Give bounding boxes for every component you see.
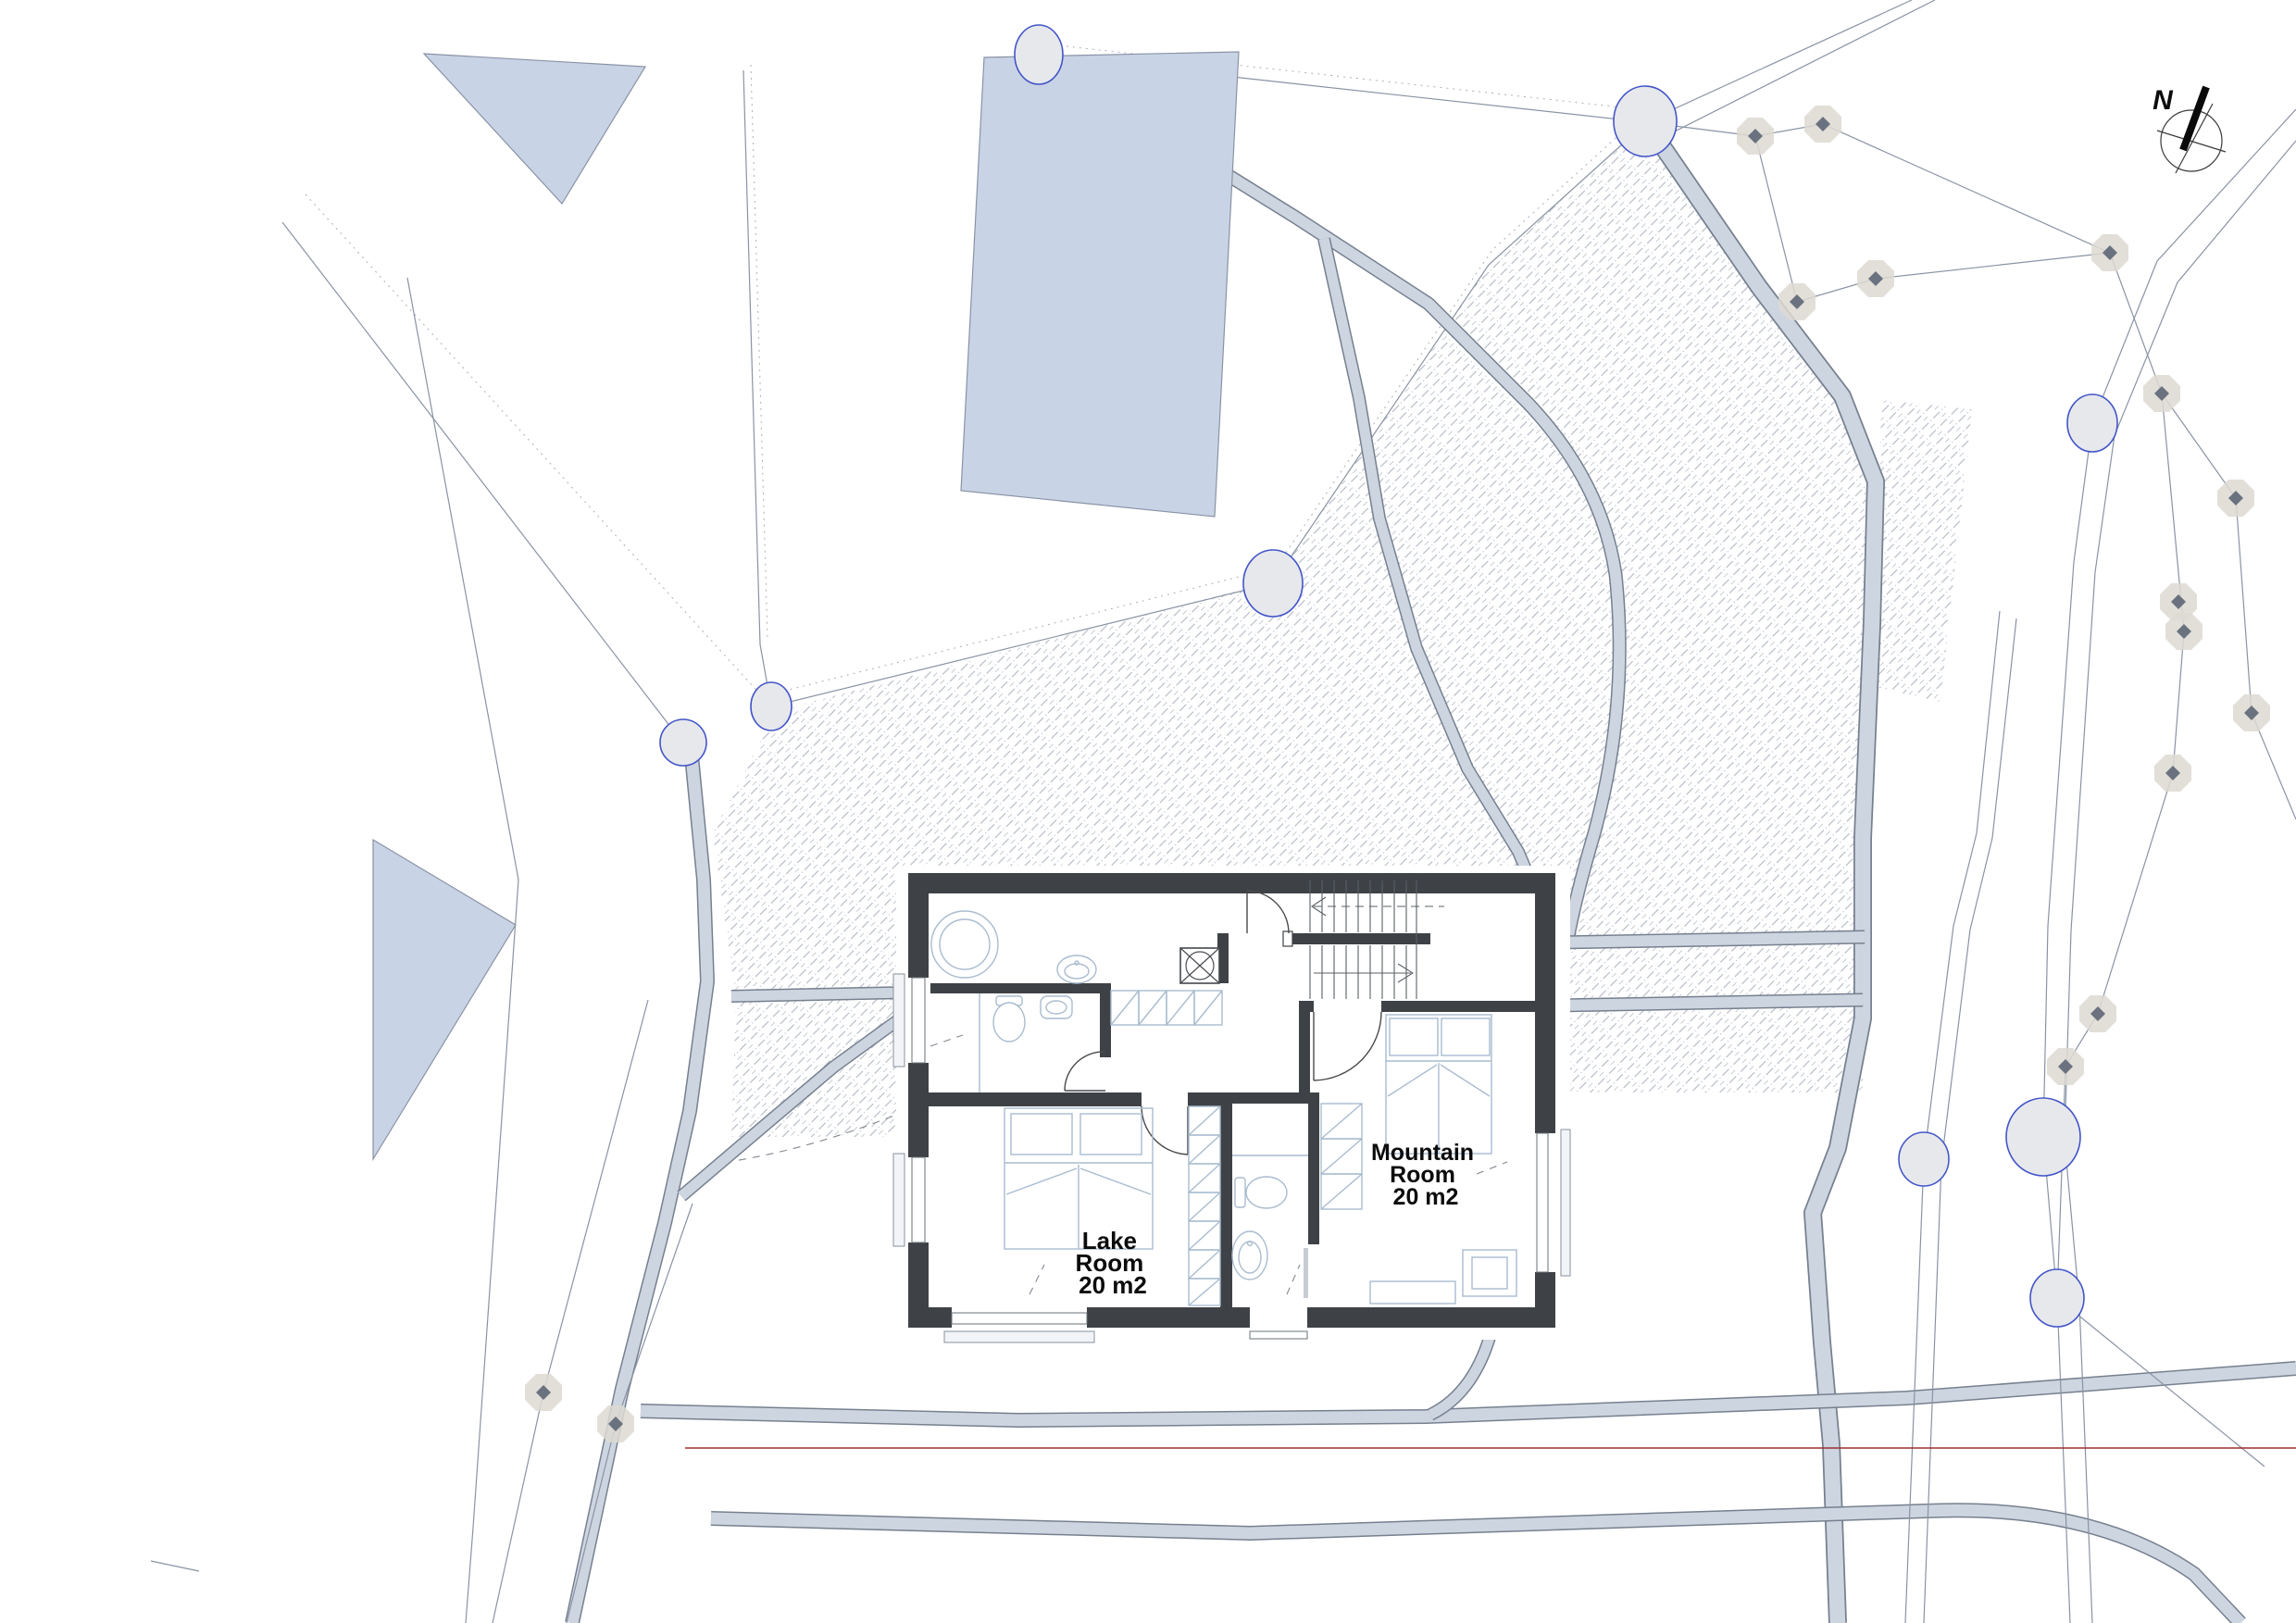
neighbor-building-north	[961, 52, 1239, 517]
building-floor-plan: Lake Room 20 m2	[893, 866, 1570, 1342]
site-plan-page: Lake Room 20 m2	[0, 0, 2296, 1623]
hatch-area-east-wedge	[1876, 400, 1972, 702]
sink-icon	[1041, 996, 1072, 1018]
lake-room-label: Lake Room 20 m2	[1076, 1227, 1151, 1299]
fence-post-icon	[1737, 118, 1774, 155]
neighbor-building-northwest	[424, 54, 645, 204]
shaft-cross-icon	[1180, 948, 1219, 983]
site-plan-drawing: Lake Room 20 m2	[0, 0, 2296, 1623]
compass-north-label: N	[2152, 85, 2174, 116]
entrance-door-opening	[1250, 1305, 1307, 1330]
neighbor-building-west	[373, 840, 516, 1159]
north-compass-icon: N	[2152, 85, 2226, 173]
toilet-icon	[993, 996, 1025, 1042]
survey-node-icon	[1015, 25, 1063, 84]
toilet-icon	[1235, 1177, 1287, 1208]
sink-icon	[1232, 1231, 1267, 1280]
